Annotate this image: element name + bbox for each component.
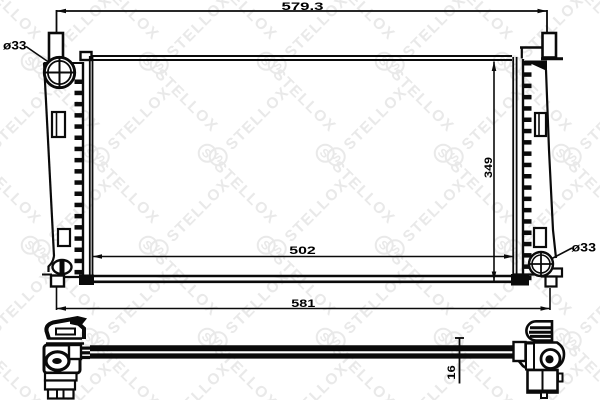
- svg-text:ø33: ø33: [572, 243, 597, 255]
- svg-text:ø33: ø33: [3, 41, 27, 53]
- svg-text:579.3: 579.3: [282, 1, 324, 13]
- svg-text:502: 502: [289, 245, 316, 257]
- svg-text:16: 16: [446, 365, 458, 380]
- svg-text:349: 349: [483, 157, 495, 178]
- svg-text:581: 581: [291, 298, 315, 310]
